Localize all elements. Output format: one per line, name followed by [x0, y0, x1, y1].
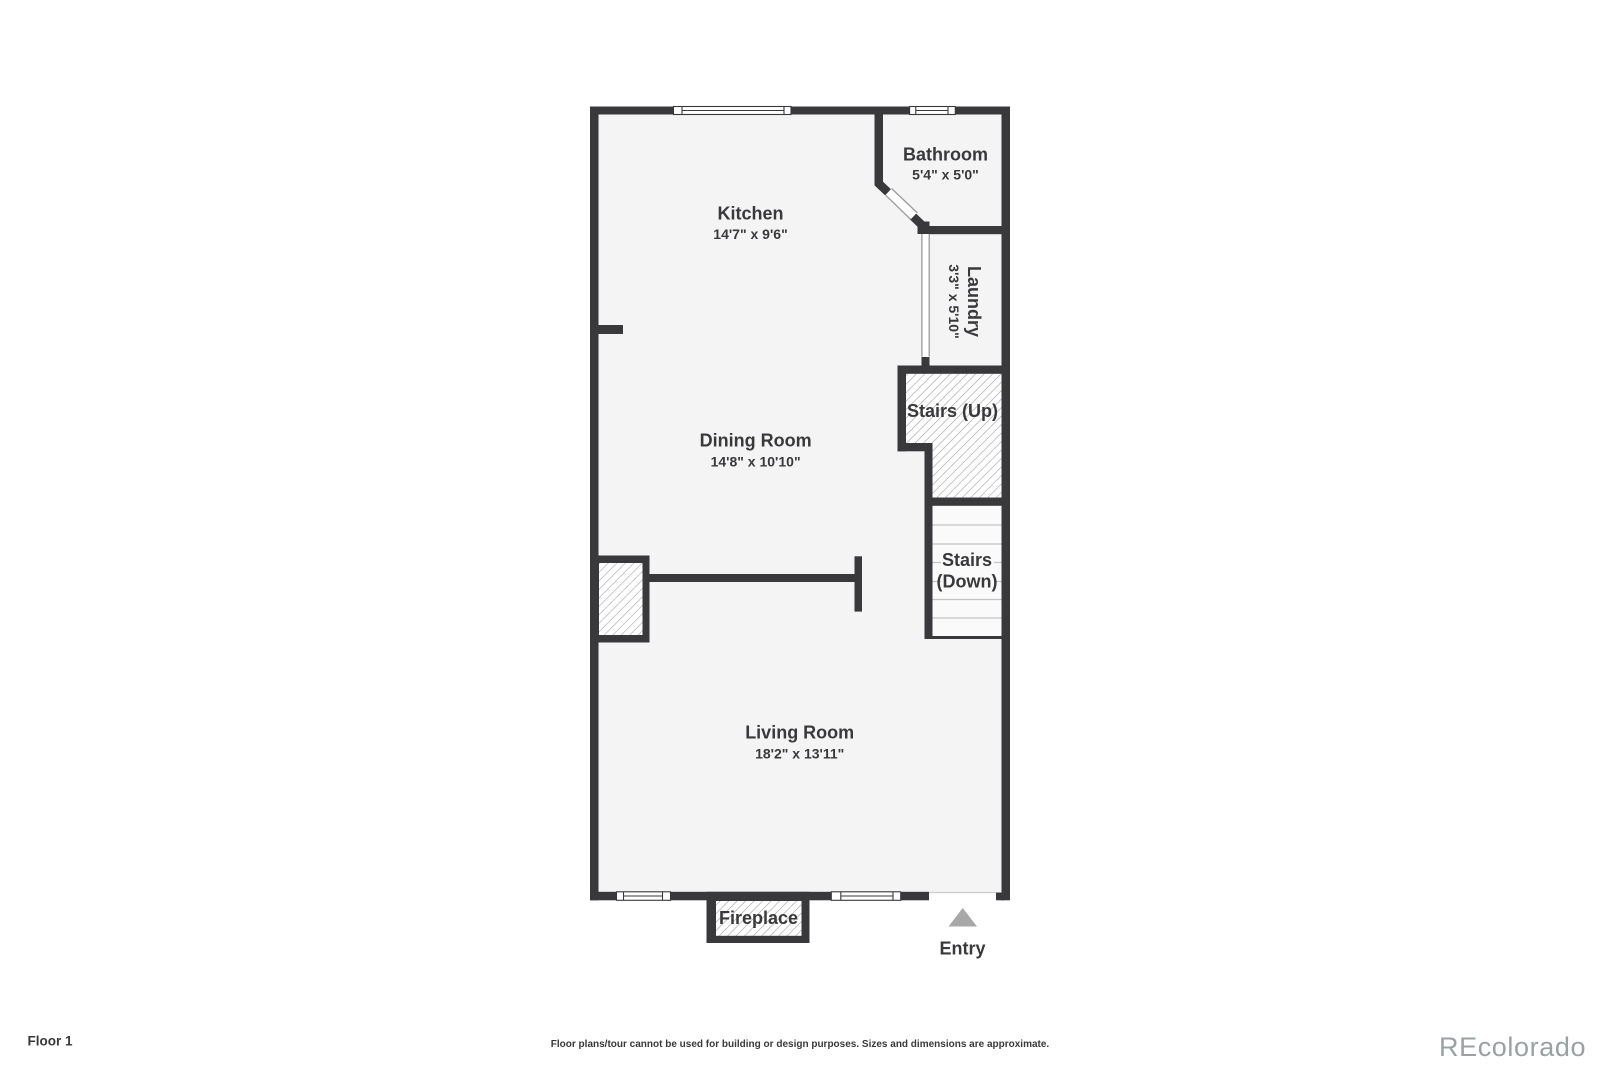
- svg-text:Floor 1: Floor 1: [28, 1034, 73, 1049]
- svg-text:3'3" x 5'10": 3'3" x 5'10": [946, 264, 962, 338]
- svg-text:Laundry: Laundry: [964, 266, 984, 337]
- svg-text:Stairs: Stairs: [942, 550, 992, 570]
- svg-text:14'7" x 9'6": 14'7" x 9'6": [713, 226, 787, 242]
- svg-text:Living Room: Living Room: [745, 723, 854, 743]
- svg-text:Entry: Entry: [939, 939, 985, 959]
- svg-text:18'2" x 13'11": 18'2" x 13'11": [755, 746, 844, 762]
- svg-text:Dining Room: Dining Room: [700, 431, 812, 451]
- svg-text:14'8" x 10'10": 14'8" x 10'10": [711, 453, 801, 469]
- svg-text:REcolorado: REcolorado: [1439, 1032, 1586, 1062]
- svg-text:Kitchen: Kitchen: [717, 204, 783, 224]
- svg-text:Stairs (Up): Stairs (Up): [907, 401, 998, 421]
- svg-text:5'4" x 5'0": 5'4" x 5'0": [912, 167, 979, 183]
- svg-text:Floor plans/tour cannot be use: Floor plans/tour cannot be used for buil…: [551, 1039, 1050, 1050]
- svg-text:(Down): (Down): [937, 571, 998, 591]
- svg-text:Bathroom: Bathroom: [903, 145, 988, 165]
- svg-text:Fireplace: Fireplace: [719, 908, 798, 928]
